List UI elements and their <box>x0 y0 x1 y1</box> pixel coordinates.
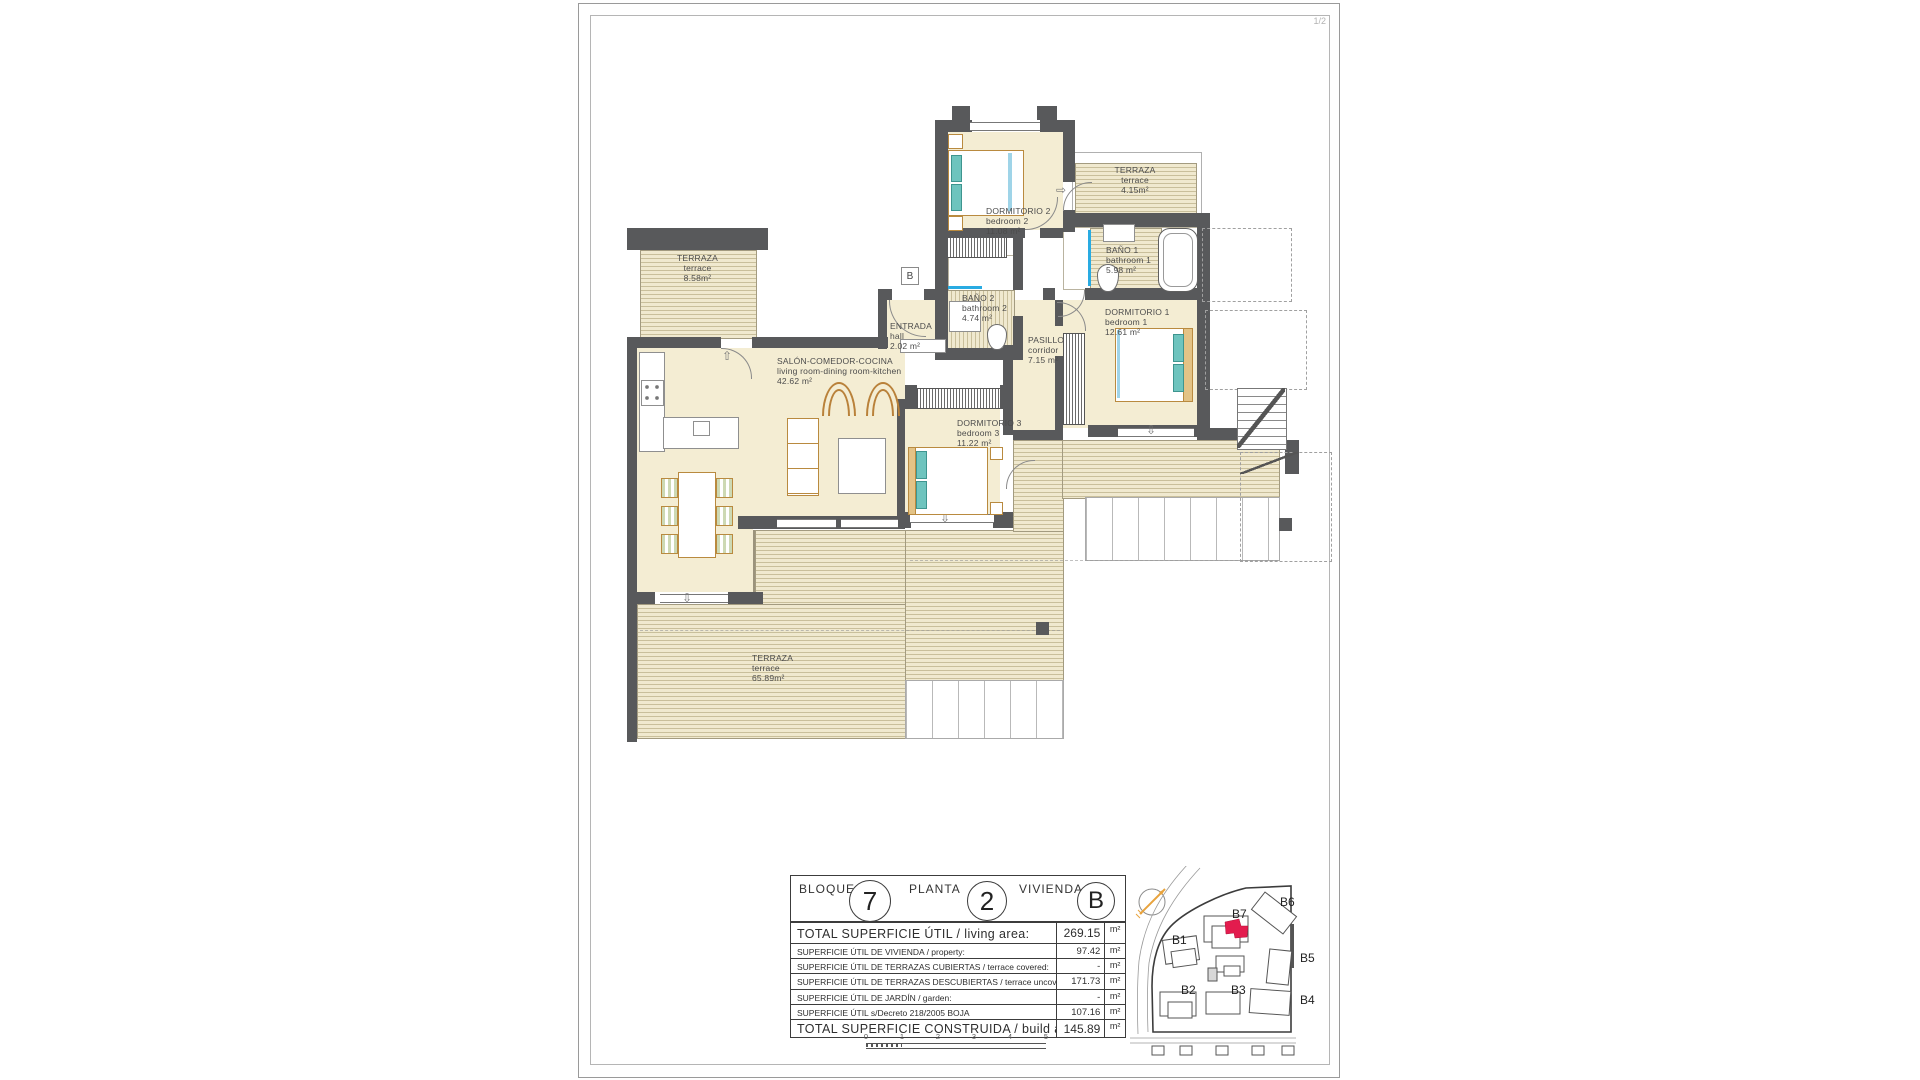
shower-glass <box>948 286 982 289</box>
communal-structure <box>1208 968 1217 981</box>
wall-diagonal <box>1240 452 1298 474</box>
block-label-b5: B5 <box>1300 951 1315 965</box>
room-name: BAÑO 2 <box>962 293 994 303</box>
wall <box>1063 210 1075 232</box>
neighbour-outline <box>1205 310 1307 390</box>
block-label-b7: B7 <box>1232 907 1247 921</box>
wall <box>897 399 905 518</box>
block-label-b2: B2 <box>1181 983 1196 997</box>
scale-bar: 0 1 2 3 4 5 <box>861 1032 1053 1050</box>
table-row: SUPERFICIE ÚTIL DE TERRAZAS DESCUBIERTAS… <box>791 973 1125 989</box>
scale-tick: 1 <box>897 1032 907 1041</box>
wall <box>627 228 768 250</box>
label-salon: SALÓN-COMEDOR-COCINA living room-dining … <box>777 357 901 386</box>
bed-headboard <box>908 447 916 515</box>
dining-table-symbol <box>678 472 716 558</box>
wall-pillar <box>952 106 970 120</box>
parcel-wall <box>1291 924 1294 968</box>
room-area: 4.74 m² <box>962 314 1007 324</box>
wall <box>1088 425 1100 437</box>
building-b2-wing <box>1168 1002 1192 1018</box>
nightstand-symbol <box>948 134 963 149</box>
terrace-main-upper <box>755 530 907 606</box>
bloque-label: BLOQUE <box>799 882 855 896</box>
wall <box>627 337 637 592</box>
site-plan: B1 B7 B6 B5 B4 B2 B3 <box>1128 866 1338 1066</box>
room-name: DORMITORIO 2 <box>986 206 1051 216</box>
window <box>777 519 836 528</box>
row-value: 145.89 <box>1056 1020 1104 1037</box>
wall <box>935 120 948 360</box>
row-unit: m² <box>1104 974 1125 989</box>
label-dormitorio-3: DORMITORIO 3 bedroom 3 11.22 m² <box>957 419 1022 448</box>
room-name: TERRAZA <box>752 653 793 663</box>
room-area: 8.58m² <box>650 274 745 284</box>
room-area: 12.61 m² <box>1105 328 1170 338</box>
room-name: BAÑO 1 <box>1106 245 1138 255</box>
sofa-symbol <box>787 418 819 496</box>
planta-label: PLANTA <box>909 882 961 896</box>
nightstand-symbol <box>990 447 1003 460</box>
area-table: BLOQUE 7 PLANTA 2 VIVIENDA B TOTAL SUPER… <box>790 875 1126 1038</box>
table-row: SUPERFICIE ÚTIL DE VIVIENDA / property: … <box>791 943 1125 958</box>
terrace-main-right <box>905 530 1064 682</box>
row-unit: m² <box>1104 1005 1125 1019</box>
neighbour-outline <box>1202 228 1292 302</box>
row-unit: m² <box>1104 1020 1125 1037</box>
scale-tick: 3 <box>969 1032 979 1041</box>
label-pasillo: PASILLO corridor 7.15 m² <box>1028 336 1064 365</box>
wall <box>1075 213 1210 227</box>
room-area: 7.15 m² <box>1028 356 1064 366</box>
wall <box>1000 385 1013 409</box>
wall <box>1209 428 1237 440</box>
communal-structure <box>1224 966 1240 976</box>
nightstand-symbol <box>990 502 1003 515</box>
scale-tick: 4 <box>1005 1032 1015 1041</box>
wall <box>1040 120 1063 132</box>
closet-pasillo <box>1063 333 1085 425</box>
coffee-table-symbol <box>838 438 886 494</box>
screenshot-root: 1/2 <box>0 0 1920 1080</box>
room-name: TERRAZA <box>1114 165 1155 175</box>
direction-arrow-icon: ⇩ <box>1146 424 1156 436</box>
compass-icon <box>1136 889 1165 918</box>
pillow-symbol <box>1173 334 1184 362</box>
window <box>910 514 994 523</box>
label-terraza-main: TERRAZA terrace 65.89m² <box>752 654 793 683</box>
area-table-header: BLOQUE 7 PLANTA 2 VIVIENDA B <box>790 875 1126 922</box>
table-row: TOTAL SUPERFICIE ÚTIL / living area: 269… <box>791 922 1125 943</box>
area-table-body: TOTAL SUPERFICIE ÚTIL / living area: 269… <box>790 922 1126 1038</box>
bed-headboard <box>1183 328 1193 402</box>
row-unit: m² <box>1104 923 1125 943</box>
block-label-b1: B1 <box>1172 933 1187 947</box>
wall <box>627 592 655 604</box>
row-label: SUPERFICIE ÚTIL DE TERRAZAS CUBIERTAS / … <box>791 959 1056 973</box>
chair-symbol <box>661 478 678 498</box>
room-name: SALÓN-COMEDOR-COCINA <box>777 356 893 366</box>
wall <box>905 385 917 409</box>
kitchen-sink-symbol <box>693 421 710 436</box>
table-row: SUPERFICIE ÚTIL s/Decreto 218/2005 BOJA … <box>791 1004 1125 1019</box>
pillow-symbol <box>951 184 962 211</box>
scale-bar-hatch <box>866 1043 902 1047</box>
chair-symbol <box>716 534 733 554</box>
closet-bano2 <box>947 237 1007 258</box>
roadside-unit <box>1282 1046 1294 1055</box>
pillow-symbol <box>916 481 927 509</box>
label-terraza-ne: TERRAZA terrace 4.15m² <box>1100 166 1170 195</box>
scale-tick: 2 <box>933 1032 943 1041</box>
pillow-symbol <box>916 451 927 479</box>
planta-value: 2 <box>967 881 1007 921</box>
terrace-post <box>1036 622 1049 635</box>
window <box>660 594 728 603</box>
building-b1-wing <box>1171 948 1197 967</box>
building-east <box>1249 989 1291 1016</box>
wall <box>637 337 721 348</box>
room-name: PASILLO <box>1028 335 1064 345</box>
row-unit: m² <box>1104 959 1125 973</box>
chair-symbol <box>716 478 733 498</box>
row-value: 171.73 <box>1056 974 1104 989</box>
chair-symbol <box>716 506 733 526</box>
row-label: SUPERFICIE ÚTIL DE JARDÍN / garden: <box>791 990 1056 1004</box>
wall-pillar <box>1037 106 1057 120</box>
room-area: 2.02 m² <box>890 342 932 352</box>
room-name: TERRAZA <box>677 253 718 263</box>
room-name: ENTRADA <box>890 321 932 331</box>
row-value: 97.42 <box>1056 944 1104 958</box>
label-dormitorio-2: DORMITORIO 2 bedroom 2 11.08 m² <box>986 207 1051 236</box>
table-row: SUPERFICIE ÚTIL DE JARDÍN / garden: - m² <box>791 989 1125 1004</box>
wall <box>1055 356 1063 430</box>
building-footprints <box>1152 892 1297 1055</box>
blanket-stripe <box>1008 153 1012 211</box>
row-label: TOTAL SUPERFICIE ÚTIL / living area: <box>791 923 1056 943</box>
label-terraza-nw: TERRAZA terrace 8.58m² <box>650 254 745 283</box>
direction-arrow-icon: ⇧ <box>722 350 732 362</box>
pergola-south <box>905 680 1064 739</box>
roadside-unit <box>1152 1046 1164 1055</box>
stove-symbol <box>641 380 664 406</box>
bloque-value: 7 <box>849 880 891 922</box>
roadside-unit <box>1252 1046 1264 1055</box>
vivienda-value: B <box>1077 882 1115 920</box>
direction-arrow-icon: ⇨ <box>1056 184 1066 196</box>
table-row: SUPERFICIE ÚTIL DE TERRAZAS CUBIERTAS / … <box>791 958 1125 973</box>
wall <box>728 592 763 604</box>
label-bano-2: BAÑO 2 bathroom 2 4.74 m² <box>962 294 1007 323</box>
room-area: 65.89m² <box>752 674 793 684</box>
row-unit: m² <box>1104 990 1125 1004</box>
chair-symbol <box>661 534 678 554</box>
sink-symbol <box>1103 224 1135 242</box>
unit-label: B <box>901 267 919 285</box>
deck-line <box>910 560 1278 561</box>
wall <box>878 294 887 349</box>
row-label: SUPERFICIE ÚTIL s/Decreto 218/2005 BOJA <box>791 1005 1056 1019</box>
room-name: DORMITORIO 1 <box>1105 307 1170 317</box>
row-value: - <box>1056 990 1104 1004</box>
roadside-unit <box>1180 1046 1192 1055</box>
building-b5 <box>1266 949 1291 985</box>
blanket-stripe <box>1117 330 1120 398</box>
terrace-edge-line <box>753 530 755 592</box>
row-value: 107.16 <box>1056 1005 1104 1019</box>
wall <box>1043 288 1055 300</box>
wall <box>1013 230 1023 290</box>
page-number: 1/2 <box>1296 16 1326 26</box>
wall <box>948 120 972 132</box>
nightstand-symbol <box>948 216 963 231</box>
deck-line <box>640 630 1060 631</box>
block-label-b3: B3 <box>1231 983 1246 997</box>
room-area: 5.98 m² <box>1106 266 1151 276</box>
window <box>841 519 898 528</box>
bathtub-symbol <box>1158 228 1198 292</box>
pillow-symbol <box>951 155 962 182</box>
wall <box>752 337 888 348</box>
scale-tick: 0 <box>861 1032 871 1041</box>
closet-dorm3 <box>917 388 1002 409</box>
room-area: 11.22 m² <box>957 439 1022 449</box>
row-unit: m² <box>1104 944 1125 958</box>
label-bano-1: BAÑO 1 bathroom 1 5.98 m² <box>1106 246 1151 275</box>
room-name: DORMITORIO 3 <box>957 418 1022 428</box>
row-label: SUPERFICIE ÚTIL DE TERRAZAS DESCUBIERTAS… <box>791 974 1056 989</box>
room-area: 42.62 m² <box>777 377 901 387</box>
direction-arrow-icon: ⇩ <box>682 592 692 604</box>
label-entrada: ENTRADA hall 2.02 m² <box>890 322 932 351</box>
stairs-diagonal <box>1237 388 1285 448</box>
scale-tick: 5 <box>1041 1032 1051 1041</box>
room-area: 11.08 m² <box>986 227 1051 237</box>
row-value: - <box>1056 959 1104 973</box>
vivienda-label: VIVIENDA <box>1019 882 1083 896</box>
wall <box>627 592 637 742</box>
shower-glass <box>1088 230 1091 286</box>
row-label: SUPERFICIE ÚTIL DE VIVIENDA / property: <box>791 944 1056 958</box>
chair-symbol <box>661 506 678 526</box>
block-label-b6: B6 <box>1280 895 1295 909</box>
label-dormitorio-1: DORMITORIO 1 bedroom 1 12.61 m² <box>1105 308 1170 337</box>
block-label-b4: B4 <box>1300 993 1315 1007</box>
pillow-symbol <box>1173 364 1184 392</box>
row-value: 269.15 <box>1056 923 1104 943</box>
wall <box>1063 120 1075 182</box>
window <box>970 122 1040 131</box>
roadside-unit <box>1216 1046 1228 1055</box>
room-area: 4.15m² <box>1100 186 1170 196</box>
